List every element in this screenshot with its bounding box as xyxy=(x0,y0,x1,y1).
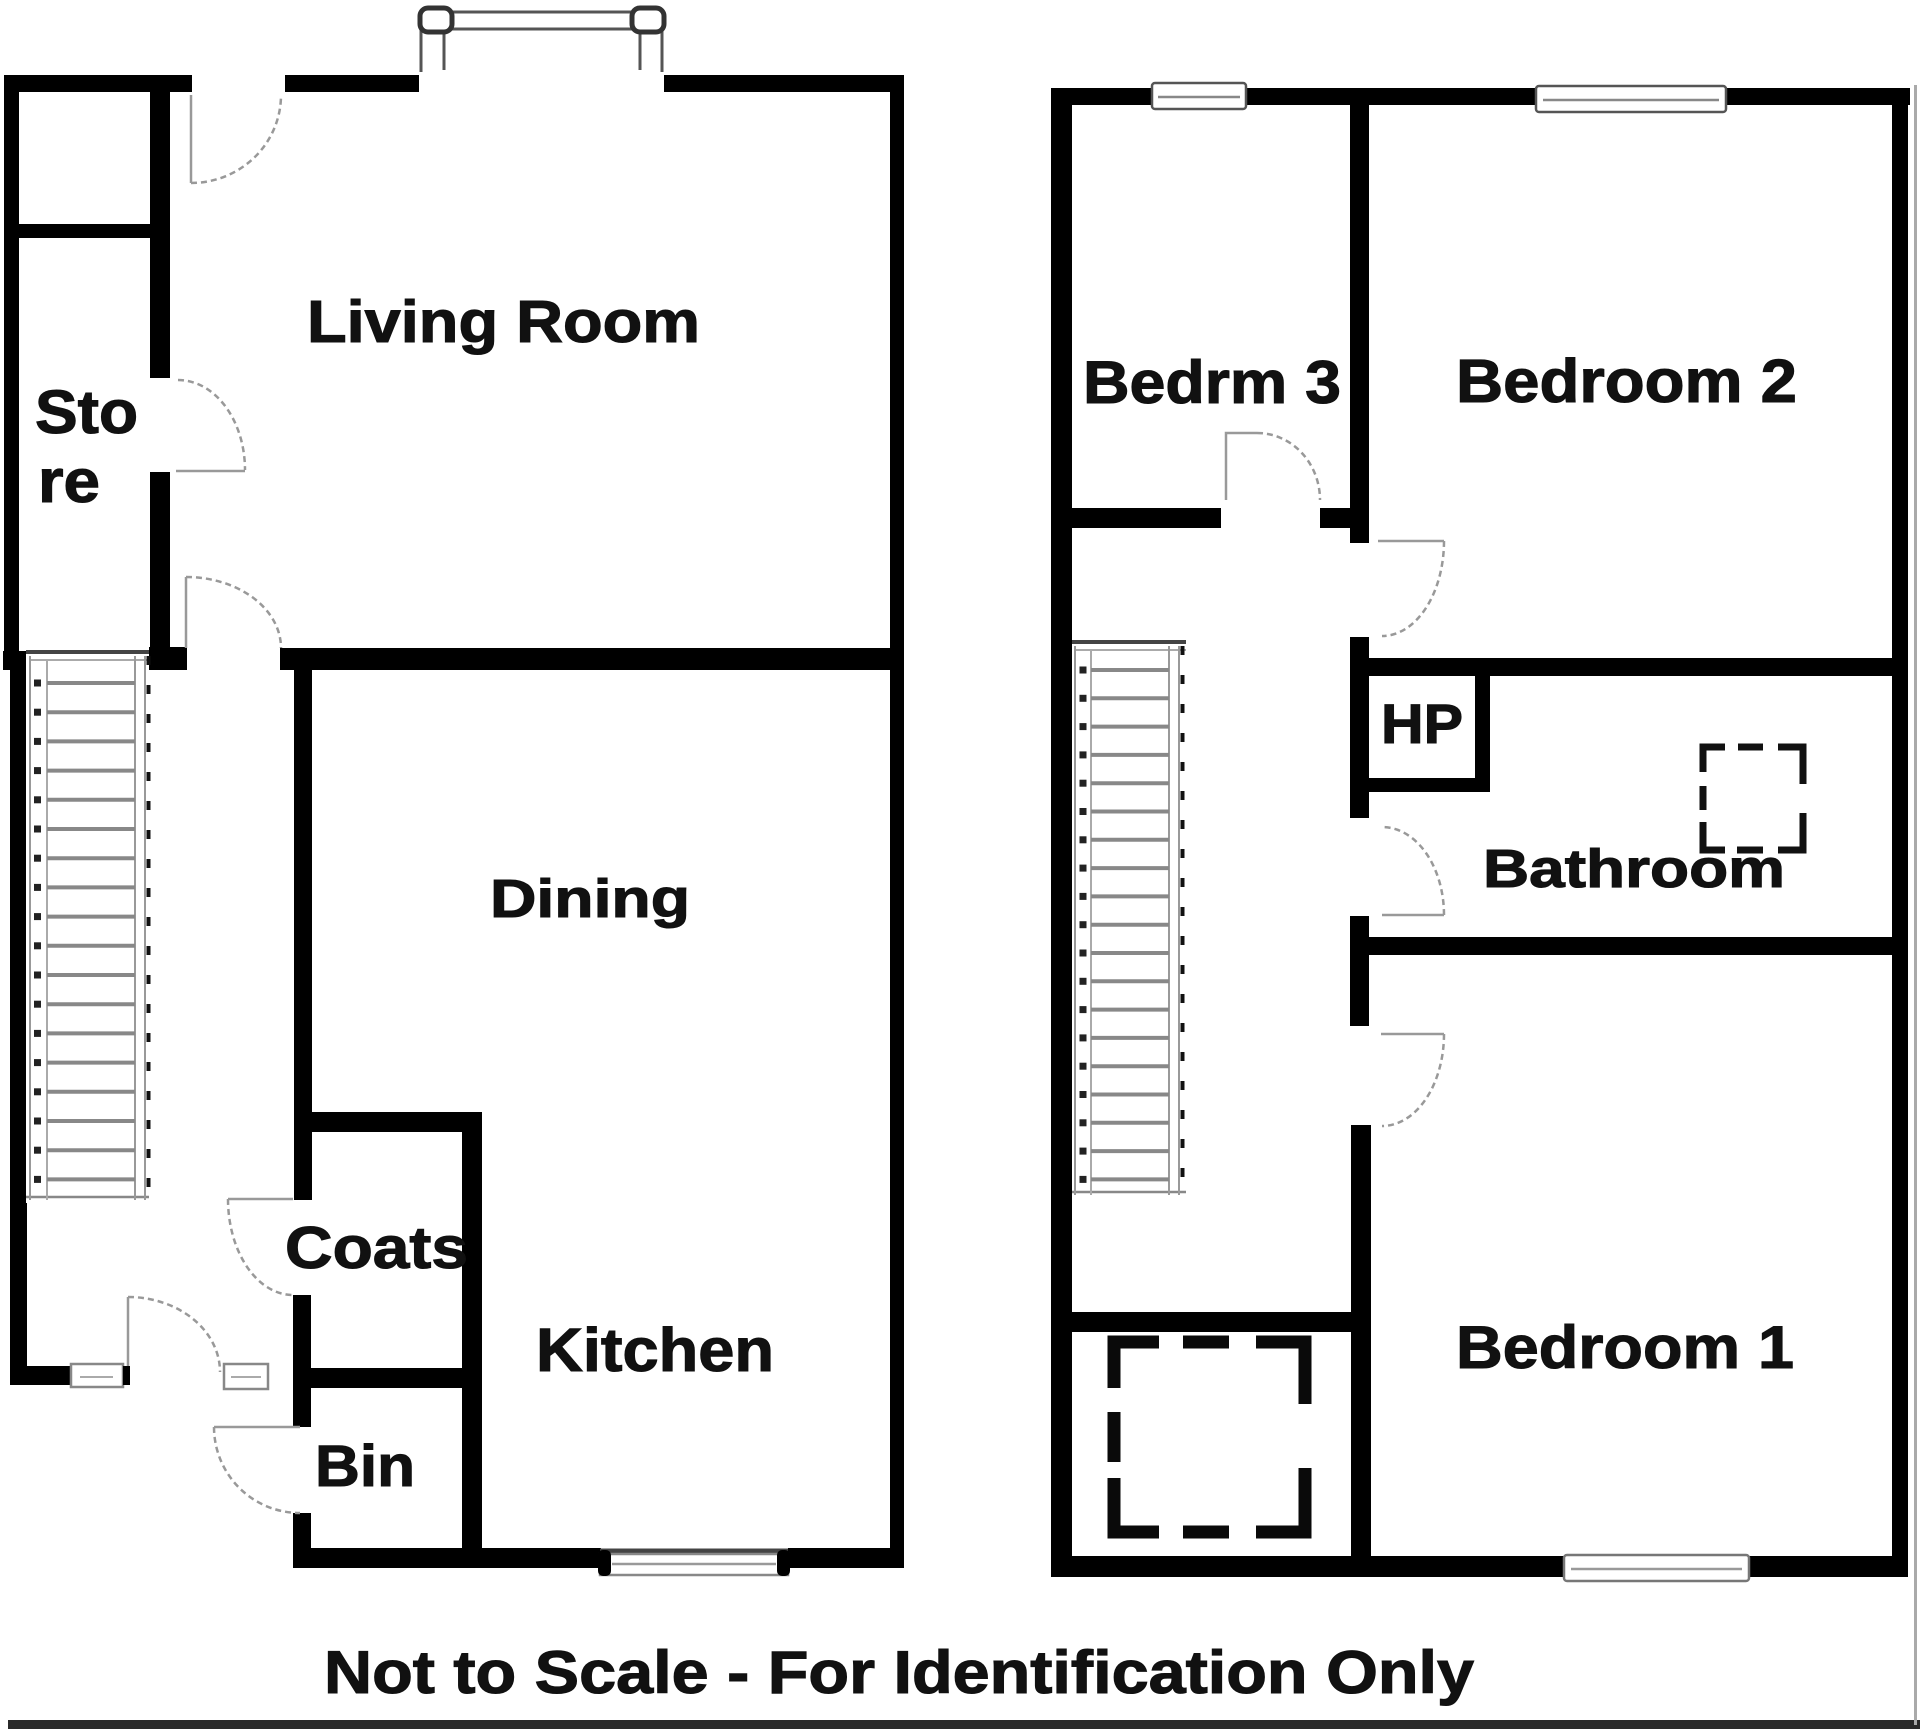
svg-text:Living Room: Living Room xyxy=(307,289,700,355)
svg-text:Bathroom: Bathroom xyxy=(1483,839,1785,899)
svg-text:Sto: Sto xyxy=(35,378,138,446)
svg-text:Bedroom 2: Bedroom 2 xyxy=(1456,347,1797,415)
svg-text:re: re xyxy=(38,447,100,515)
svg-text:Not to Scale - For Identificat: Not to Scale - For Identification Only xyxy=(324,1639,1475,1706)
svg-text:Coats: Coats xyxy=(285,1215,468,1281)
svg-text:Bin: Bin xyxy=(315,1434,415,1499)
svg-text:Dining: Dining xyxy=(490,869,690,929)
svg-text:Bedrm 3: Bedrm 3 xyxy=(1083,349,1341,416)
svg-text:Kitchen: Kitchen xyxy=(536,1316,774,1384)
svg-text:Bedroom 1: Bedroom 1 xyxy=(1456,1314,1794,1381)
svg-text:HP: HP xyxy=(1381,692,1463,755)
